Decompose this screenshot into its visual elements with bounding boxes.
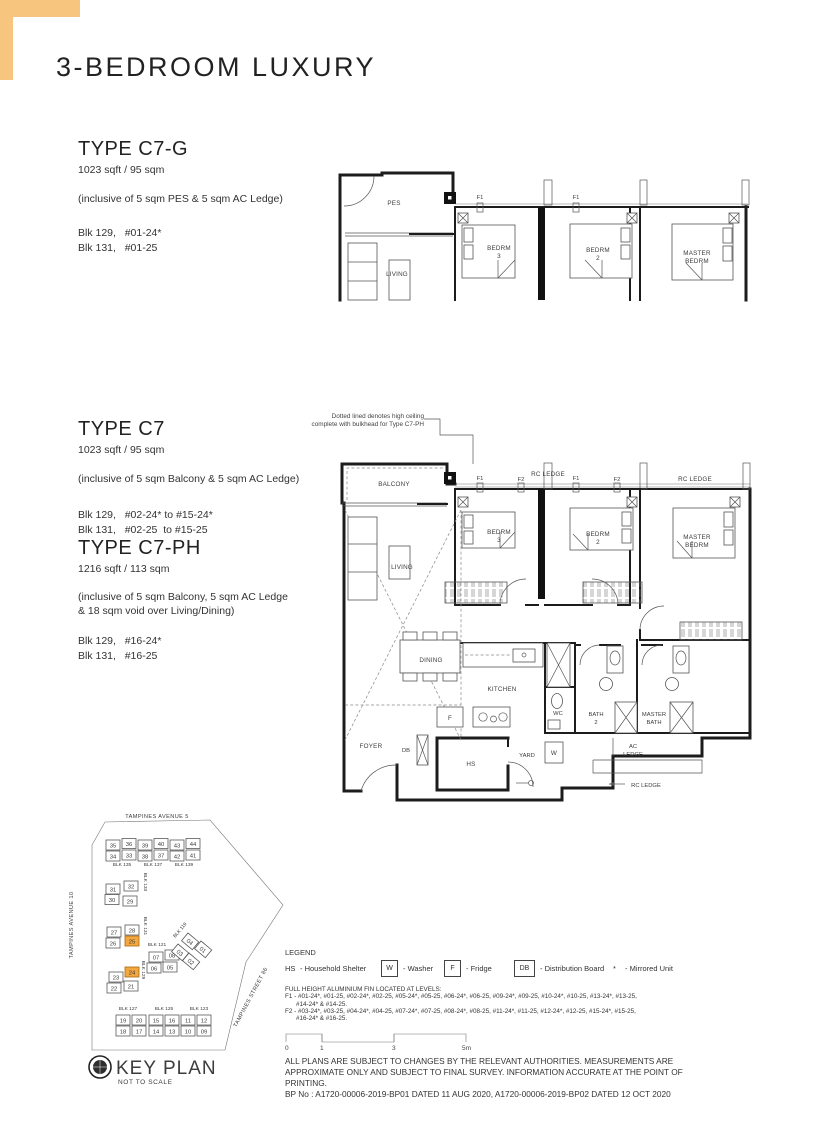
keyplan-unit-31: 31 xyxy=(106,884,120,894)
label-fridge: F xyxy=(448,715,452,722)
fin-note: FULL HEIGHT ALUMINIUM FIN LOCATED AT LEV… xyxy=(285,986,725,1022)
keyplan-block-blk-133: BLK 133 xyxy=(142,873,148,892)
svg-text:25: 25 xyxy=(129,940,136,946)
type-c7-blk2: Blk 131, #02-25 to #15-25 xyxy=(78,524,299,536)
keyplan-unit-13: 13 xyxy=(165,1026,179,1036)
fridge-box-icon: F xyxy=(444,960,461,977)
scale-tick-3: 3 xyxy=(392,1045,396,1052)
svg-text:06: 06 xyxy=(151,967,158,973)
keyplan-unit-23: 23 xyxy=(109,972,123,982)
keyplan-subtitle: NOT TO SCALE xyxy=(118,1079,173,1086)
keyplan-unit-06: 06 xyxy=(147,963,161,973)
type-c7-info: TYPE C7 1023 sqft / 95 sqm (inclusive of… xyxy=(78,418,299,536)
svg-text:39: 39 xyxy=(142,844,149,850)
brochure-page: 3-BEDROOM LUXURY TYPE C7-G 1023 sqft / 9… xyxy=(0,0,830,1142)
keyplan-unit-33: 33 xyxy=(122,850,136,860)
fin-note-f1: F1 - #01-24*, #01-25, #02-24*, #02-25, #… xyxy=(285,993,725,1000)
db-box xyxy=(417,735,428,765)
legend-key-mirrored: * xyxy=(613,964,616,973)
svg-text:41: 41 xyxy=(190,854,197,860)
svg-text:38: 38 xyxy=(142,855,149,861)
room-label-pes: PES xyxy=(387,200,400,207)
sofa xyxy=(348,243,377,300)
svg-text:29: 29 xyxy=(127,900,134,906)
keyplan-unit-24: 24 xyxy=(125,967,139,977)
keyplan-unit-07: 07 xyxy=(149,952,163,962)
floorplan-type-c7: BALCONY RC LEDGE RC LEDGE F1 F2 F1 F2 BE… xyxy=(330,408,770,810)
legend-label-mirrored: - Mirrored Unit xyxy=(625,964,673,973)
keyplan-unit-42: 42 xyxy=(170,851,184,861)
keyplan-unit-27: 27 xyxy=(107,927,121,937)
keyplan-block-blk-129: BLK 129 xyxy=(140,961,146,980)
type-c7g-area: 1023 sqft / 95 sqm xyxy=(78,164,283,176)
svg-text:2: 2 xyxy=(596,255,600,262)
scale-bar: 0 1 3 5m xyxy=(285,1030,485,1052)
keyplan-unit-26: 26 xyxy=(106,938,120,948)
svg-text:3: 3 xyxy=(497,253,501,260)
type-c7ph-blk2: Blk 131, #16-25 xyxy=(78,650,288,662)
type-c7g-blk2: Blk 131, #01-25 xyxy=(78,242,283,254)
rc-ledge-arrow xyxy=(609,782,625,786)
keyplan-unit-20: 20 xyxy=(132,1015,146,1025)
keyplan-unit-37: 37 xyxy=(154,850,168,860)
type-c7g-info: TYPE C7-G 1023 sqft / 95 sqm (inclusive … xyxy=(78,138,283,254)
bed-bedroom2 xyxy=(570,508,633,550)
keyplan-unit-10: 10 xyxy=(181,1026,195,1036)
keyplan-block-blk-135: BLK 135 xyxy=(113,862,132,868)
keyplan-unit-34: 34 xyxy=(106,851,120,861)
keyplan-unit-44: 44 xyxy=(186,839,200,849)
svg-text:30: 30 xyxy=(109,898,116,904)
keyplan-unit-21: 21 xyxy=(124,981,138,991)
disclaimer-line1: ALL PLANS ARE SUBJECT TO CHANGES BY THE … xyxy=(285,1056,725,1067)
svg-text:44: 44 xyxy=(190,842,197,848)
svg-text:28: 28 xyxy=(129,929,136,935)
keyplan-unit-38: 38 xyxy=(138,851,152,861)
svg-text:20: 20 xyxy=(136,1019,143,1025)
svg-text:21: 21 xyxy=(128,985,135,991)
key-plan: TAMPINES AVENUE 5 TAMPINES AVENUE 10 TAM… xyxy=(60,800,290,1092)
fin-label-f1: F1 xyxy=(477,476,484,482)
scale-tick-1: 1 xyxy=(320,1045,324,1052)
keyplan-block-blk-127: BLK 127 xyxy=(119,1006,138,1012)
room-label-bath2: BATH xyxy=(588,712,603,718)
type-c7-blk1: Blk 129, #02-24* to #15-24* xyxy=(78,509,299,521)
svg-text:23: 23 xyxy=(113,976,120,982)
sofa xyxy=(348,517,377,600)
type-c7g-inclusive: (inclusive of 5 sqm PES & 5 sqm AC Ledge… xyxy=(78,193,283,205)
keyplan-unit-05: 05 xyxy=(163,962,177,972)
keyplan-unit-30: 30 xyxy=(105,895,119,905)
svg-text:BEDRM: BEDRM xyxy=(685,258,709,265)
keyplan-block-blk-131: BLK 131 xyxy=(142,917,148,936)
svg-text:37: 37 xyxy=(158,854,165,860)
label-db: DB xyxy=(402,748,410,754)
svg-text:2: 2 xyxy=(596,539,600,546)
svg-text:26: 26 xyxy=(110,942,117,948)
keyplan-block-blk-125: BLK 125 xyxy=(155,1006,174,1012)
legend-title: LEGEND xyxy=(285,948,725,957)
fin-label-f1: F1 xyxy=(573,476,580,482)
fin-label-f2: F2 xyxy=(614,477,621,483)
keyplan-block-blk-137: BLK 137 xyxy=(144,862,163,868)
keyplan-block-blk-121: BLK 121 xyxy=(148,942,167,948)
label-rc-ledge: RC LEDGE xyxy=(678,476,712,483)
keyplan-unit-14: 14 xyxy=(149,1026,163,1036)
svg-text:24: 24 xyxy=(129,971,136,977)
room-label-foyer: FOYER xyxy=(360,743,383,750)
floorplan-type-c7g: PES F1 F1 BEDRM 3 BEDRM 2 MASTER BEDRM L… xyxy=(330,160,760,310)
svg-text:31: 31 xyxy=(110,888,117,894)
svg-text:27: 27 xyxy=(111,931,118,937)
room-label-yard: YARD xyxy=(519,753,535,759)
room-label-masterbath: MASTER xyxy=(642,712,666,718)
svg-text:43: 43 xyxy=(174,844,181,850)
type-c7-inclusive: (inclusive of 5 sqm Balcony & 5 sqm AC L… xyxy=(78,473,299,485)
keyplan-unit-40: 40 xyxy=(154,839,168,849)
kitchen-counter xyxy=(463,643,543,667)
svg-text:11: 11 xyxy=(185,1019,191,1025)
room-label-bedrm2: BEDRM xyxy=(586,531,610,538)
type-c7ph-inclusive2: & 18 sqm void over Living/Dining) xyxy=(78,605,288,617)
room-label-living: LIVING xyxy=(391,564,413,571)
door-arc-foyer xyxy=(361,765,397,791)
keyplan-unit-22: 22 xyxy=(107,983,121,993)
type-c7ph-info: TYPE C7-PH 1216 sqft / 113 sqm (inclusiv… xyxy=(78,537,288,662)
legend-label-washer: - Washer xyxy=(403,964,433,973)
svg-text:33: 33 xyxy=(126,854,133,860)
keyplan-unit-25: 25 xyxy=(125,936,139,946)
keyplan-unit-32: 32 xyxy=(124,881,138,891)
svg-text:18: 18 xyxy=(120,1030,127,1036)
disclaimer: ALL PLANS ARE SUBJECT TO CHANGES BY THE … xyxy=(285,1056,725,1100)
svg-text:32: 32 xyxy=(128,885,135,891)
type-c7-name: TYPE C7 xyxy=(78,418,299,441)
fin-label-f2: F2 xyxy=(518,477,525,483)
keyplan-unit-29: 29 xyxy=(123,896,137,906)
label-ac-ledge: AC xyxy=(629,744,637,750)
ac-unit-icon xyxy=(458,497,740,507)
keyplan-unit-12: 12 xyxy=(197,1015,211,1025)
type-c7g-blk1: Blk 129, #01-24* xyxy=(78,227,283,239)
tv-console xyxy=(389,260,410,300)
svg-text:05: 05 xyxy=(167,966,174,972)
keyplan-unit-18: 18 xyxy=(116,1026,130,1036)
svg-text:3: 3 xyxy=(497,537,501,544)
street-label-top: TAMPINES AVENUE 5 xyxy=(125,814,188,820)
street-label-left: TAMPINES AVENUE 10 xyxy=(69,892,75,959)
keyplan-unit-41: 41 xyxy=(186,850,200,860)
svg-text:BATH: BATH xyxy=(646,720,661,726)
room-label-master: MASTER xyxy=(683,534,711,541)
keyplan-unit-09: 09 xyxy=(197,1026,211,1036)
svg-text:LEDGE: LEDGE xyxy=(623,752,643,758)
svg-text:40: 40 xyxy=(158,842,165,848)
bath2-fixtures xyxy=(600,646,638,733)
door-arc-masterbath xyxy=(642,645,662,665)
masterbath-fixtures xyxy=(666,646,694,733)
c7-labels: BALCONY RC LEDGE RC LEDGE F1 F2 F1 F2 BE… xyxy=(360,471,712,789)
svg-text:42: 42 xyxy=(174,855,181,861)
keyplan-block-blk-123: BLK 123 xyxy=(190,1006,209,1012)
room-label-living: LIVING xyxy=(386,271,408,278)
fin-note-title: FULL HEIGHT ALUMINIUM FIN LOCATED AT LEV… xyxy=(285,986,725,993)
type-c7ph-name: TYPE C7-PH xyxy=(78,537,288,560)
disclaimer-line3: BP No : A1720-00006-2019-BP01 DATED 11 A… xyxy=(285,1089,725,1100)
ac-unit-icon xyxy=(458,213,739,223)
keyplan-unit-15: 15 xyxy=(149,1015,163,1025)
type-c7ph-blk1: Blk 129, #16-24* xyxy=(78,635,288,647)
compass-icon xyxy=(89,1056,111,1078)
page-title: 3-BEDROOM LUXURY xyxy=(56,52,376,83)
legend-label-hs: - Household Shelter xyxy=(300,964,366,973)
keyplan-unit-35: 35 xyxy=(106,840,120,850)
svg-text:19: 19 xyxy=(120,1019,127,1025)
legend-key-hs: HS xyxy=(285,964,295,973)
svg-text:22: 22 xyxy=(111,987,118,993)
room-label-wc: WC xyxy=(553,711,563,717)
room-label-balcony: BALCONY xyxy=(378,481,410,488)
wardrobe-bedroom3 xyxy=(445,582,507,603)
type-c7g-name: TYPE C7-G xyxy=(78,138,283,161)
keyplan-unit-17: 17 xyxy=(132,1026,146,1036)
type-c7-area: 1023 sqft / 95 sqm xyxy=(78,444,299,456)
svg-text:12: 12 xyxy=(201,1019,208,1025)
note-leader-line xyxy=(424,419,473,464)
svg-text:36: 36 xyxy=(126,842,133,848)
svg-text:16: 16 xyxy=(169,1019,176,1025)
label-washer: W xyxy=(551,750,557,757)
legend-label-fridge: - Fridge xyxy=(466,964,492,973)
label-rc-ledge: RC LEDGE xyxy=(531,471,565,478)
label-rc-ledge-bottom: RC LEDGE xyxy=(631,783,661,789)
svg-text:2: 2 xyxy=(594,720,597,726)
svg-text:35: 35 xyxy=(110,844,117,850)
svg-text:14: 14 xyxy=(153,1030,160,1036)
svg-text:15: 15 xyxy=(153,1019,160,1025)
svg-text:09: 09 xyxy=(201,1030,208,1036)
room-label-bedrm3: BEDRM xyxy=(487,245,511,252)
stove xyxy=(473,707,510,727)
yard-tap xyxy=(516,781,534,786)
scale-tick-0: 0 xyxy=(285,1045,289,1052)
room-label-hs: HS xyxy=(466,761,475,768)
door-arc-master xyxy=(640,606,664,630)
keyplan-unit-11: 11 xyxy=(181,1015,195,1025)
svg-text:17: 17 xyxy=(136,1030,143,1036)
street-label-right: TAMPINES STREET 86 xyxy=(233,967,270,1029)
legend-label-db: - Distribution Board xyxy=(540,964,604,973)
wardrobe-bedroom2 xyxy=(583,582,642,603)
db-box-icon: DB xyxy=(514,960,535,977)
svg-text:BEDRM: BEDRM xyxy=(685,542,709,549)
disclaimer-line2: APPROXIMATE ONLY AND SUBJECT TO FINAL SU… xyxy=(285,1067,725,1089)
keyplan-unit-19: 19 xyxy=(116,1015,130,1025)
room-label-bedrm2: BEDRM xyxy=(586,247,610,254)
door-arc-bath2 xyxy=(580,645,600,665)
fin-note-f2: F2 - #03-24*, #03-25, #04-24*, #04-25, #… xyxy=(285,1008,725,1015)
type-c7ph-inclusive1: (inclusive of 5 sqm Balcony, 5 sqm AC Le… xyxy=(78,591,288,603)
fin-label-f1: F1 xyxy=(477,195,484,201)
keyplan-unit-36: 36 xyxy=(122,839,136,849)
keyplan-title: KEY PLAN xyxy=(116,1058,217,1079)
c7-dashed xyxy=(345,468,461,740)
wardrobe-master xyxy=(680,622,742,640)
keyplan-unit-43: 43 xyxy=(170,840,184,850)
keyplan-unit-16: 16 xyxy=(165,1015,179,1025)
legend-section: LEGEND HS - Household Shelter W - Washer… xyxy=(285,948,725,1100)
bed-master xyxy=(673,508,735,558)
tv-console xyxy=(389,546,410,579)
legend-row: HS - Household Shelter W - Washer F - Fr… xyxy=(285,960,725,980)
type-c7ph-area: 1216 sqft / 113 sqm xyxy=(78,563,288,575)
washer-box-icon: W xyxy=(381,960,398,977)
room-label-dining: DINING xyxy=(419,657,442,664)
corner-accent-vertical xyxy=(0,0,13,80)
tall-unit xyxy=(547,643,570,687)
room-label-kitchen: KITCHEN xyxy=(487,686,516,693)
room-label-master: MASTER xyxy=(683,250,711,257)
svg-text:34: 34 xyxy=(110,855,117,861)
keyplan-unit-28: 28 xyxy=(125,925,139,935)
room-label-bedrm3: BEDRM xyxy=(487,529,511,536)
keyplan-block-blk-139: BLK 139 xyxy=(175,862,194,868)
scale-tick-5m: 5m xyxy=(462,1045,471,1052)
svg-text:07: 07 xyxy=(153,956,160,962)
svg-text:10: 10 xyxy=(185,1030,192,1036)
keyplan-unit-39: 39 xyxy=(138,840,152,850)
svg-text:13: 13 xyxy=(169,1030,176,1036)
fin-label-f1: F1 xyxy=(573,195,580,201)
